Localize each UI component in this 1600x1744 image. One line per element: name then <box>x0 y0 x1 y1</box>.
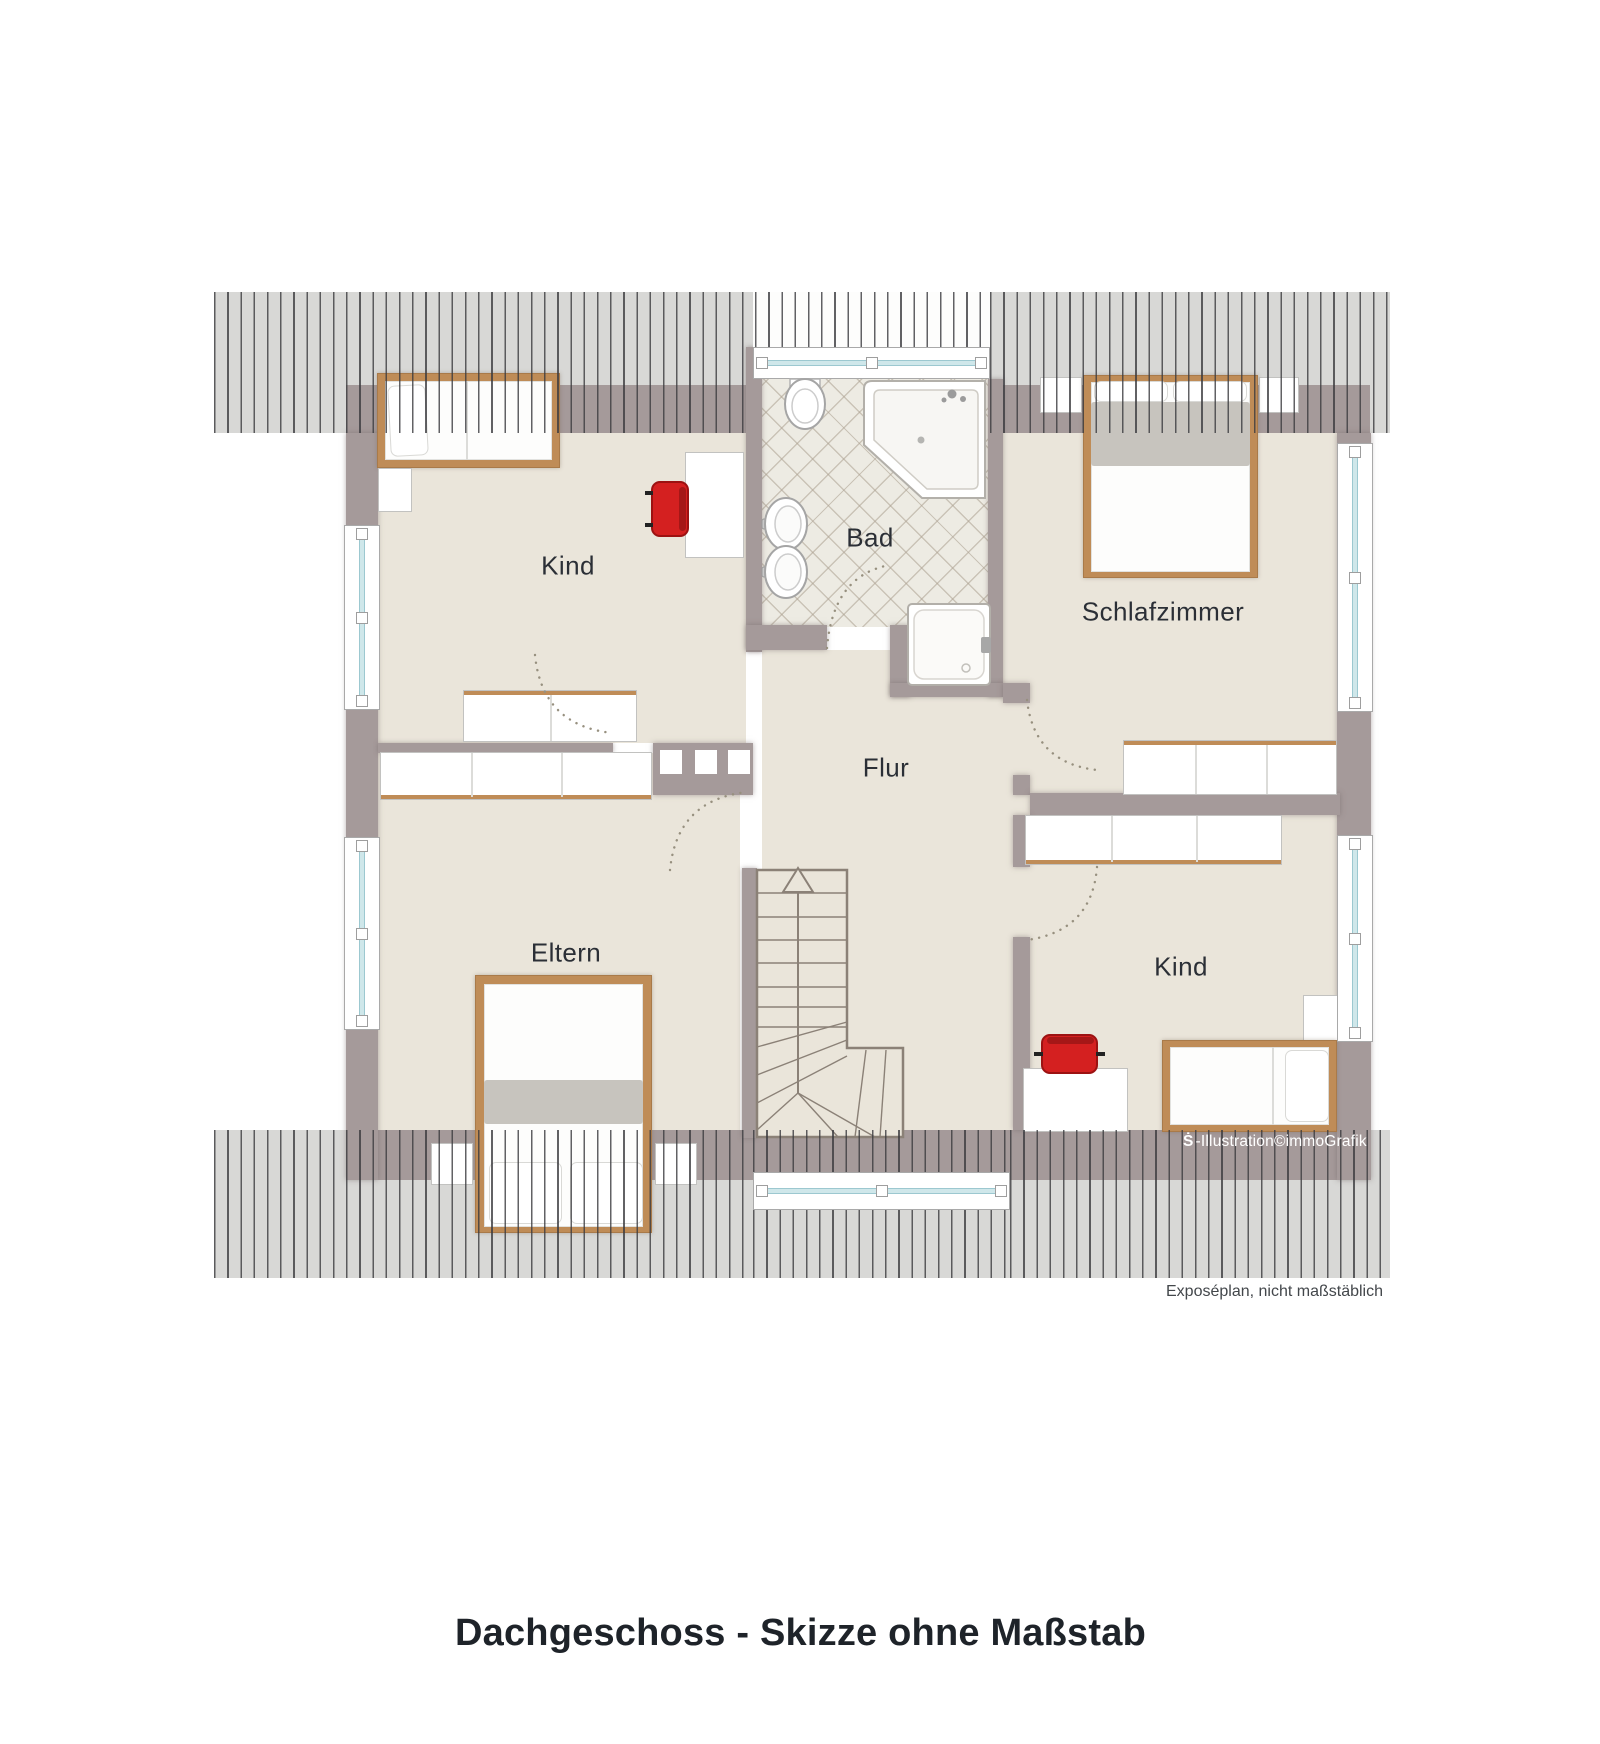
door-arc-bad <box>827 565 890 648</box>
roof-hatch-lines <box>1010 1130 1390 1278</box>
sparkasse-logo-icon: Ṡ <box>1183 1133 1194 1150</box>
floor-plan: Kind Bad Schlafzimmer Flur Eltern Kind Ṡ… <box>0 0 1600 1744</box>
shower-icon <box>908 604 991 685</box>
plan-vector-overlay <box>0 0 1600 1744</box>
staircase <box>757 868 903 1137</box>
roof-hatch-lines <box>753 1210 1010 1278</box>
room-label-kind-bottom-right: Kind <box>1154 952 1208 983</box>
bathtub-faucet <box>948 390 957 399</box>
scale-disclaimer: Exposéplan, nicht maßstäblich <box>1166 1283 1383 1301</box>
door-arc-schlafzimmer <box>1027 700 1097 770</box>
roof-hatch-lines <box>214 1130 753 1278</box>
bathtub-icon <box>864 381 985 498</box>
room-label-flur: Flur <box>863 753 909 784</box>
door-arc-eltern <box>670 792 748 870</box>
roof-hatch-lines <box>990 292 1390 433</box>
watermark-text: -Illustration©immoGrafik <box>1196 1133 1367 1150</box>
page-title: Dachgeschoss - Skizze ohne Maßstab <box>455 1612 1146 1655</box>
roof-hatch-lines <box>753 1130 1010 1172</box>
sink-icons <box>762 498 807 598</box>
room-label-eltern: Eltern <box>531 938 601 969</box>
room-label-kind-top-left: Kind <box>541 551 595 582</box>
room-label-schlafzimmer: Schlafzimmer <box>1082 597 1244 628</box>
door-arc-kind-top <box>535 655 613 733</box>
roof-hatch-lines <box>755 292 990 347</box>
door-arc-kind-bottom <box>1027 867 1097 940</box>
watermark: Ṡ-Illustration©immoGrafik <box>1183 1133 1367 1151</box>
room-label-bad: Bad <box>846 523 893 554</box>
shower-head <box>981 637 991 653</box>
roof-hatch-lines <box>214 292 755 433</box>
toilet-icon <box>785 379 825 429</box>
